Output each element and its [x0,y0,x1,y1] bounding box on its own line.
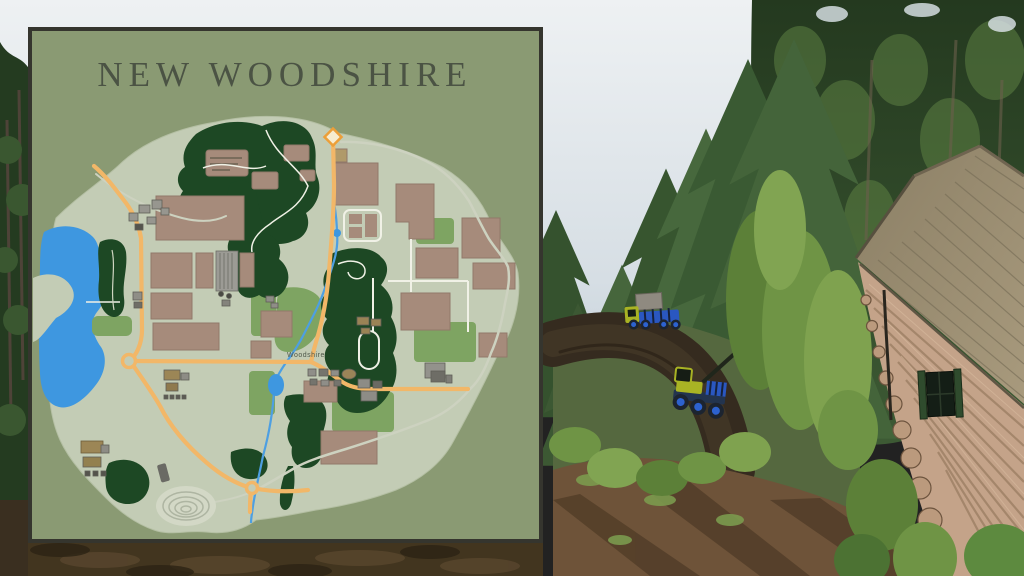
ground-strip [28,543,543,576]
screenshot-stage: NEW WOODSHIRE [0,0,1024,576]
town-label: Woodshire [287,352,325,359]
map-panel: NEW WOODSHIRE [28,27,543,543]
cabin-window [918,369,963,419]
map-title: NEW WOODSHIRE [97,55,472,94]
roundabout-south [247,483,258,494]
roundabout-west [123,355,136,368]
town-pond [268,374,284,396]
